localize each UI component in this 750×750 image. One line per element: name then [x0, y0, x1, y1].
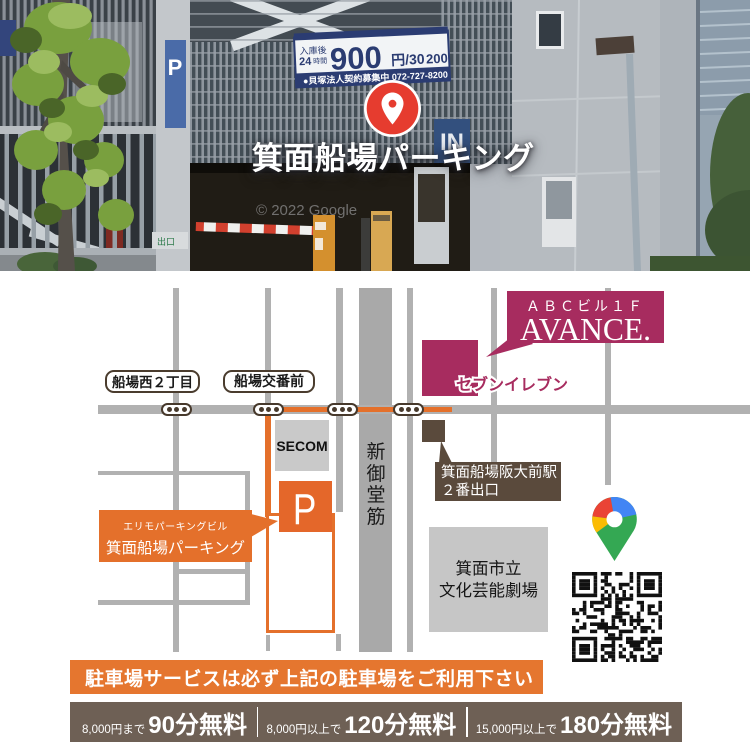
svg-text:900: 900	[329, 40, 382, 77]
svg-text:P: P	[168, 55, 183, 80]
svg-text:円/30: 円/30	[391, 51, 425, 69]
svg-text:時間: 時間	[313, 57, 327, 66]
svg-text:24: 24	[299, 56, 313, 69]
svg-text:© 2022 Google: © 2022 Google	[256, 202, 357, 219]
svg-text:入庫後: 入庫後	[299, 44, 326, 56]
svg-text:200: 200	[426, 51, 448, 67]
svg-text:出口: 出口	[157, 236, 175, 247]
